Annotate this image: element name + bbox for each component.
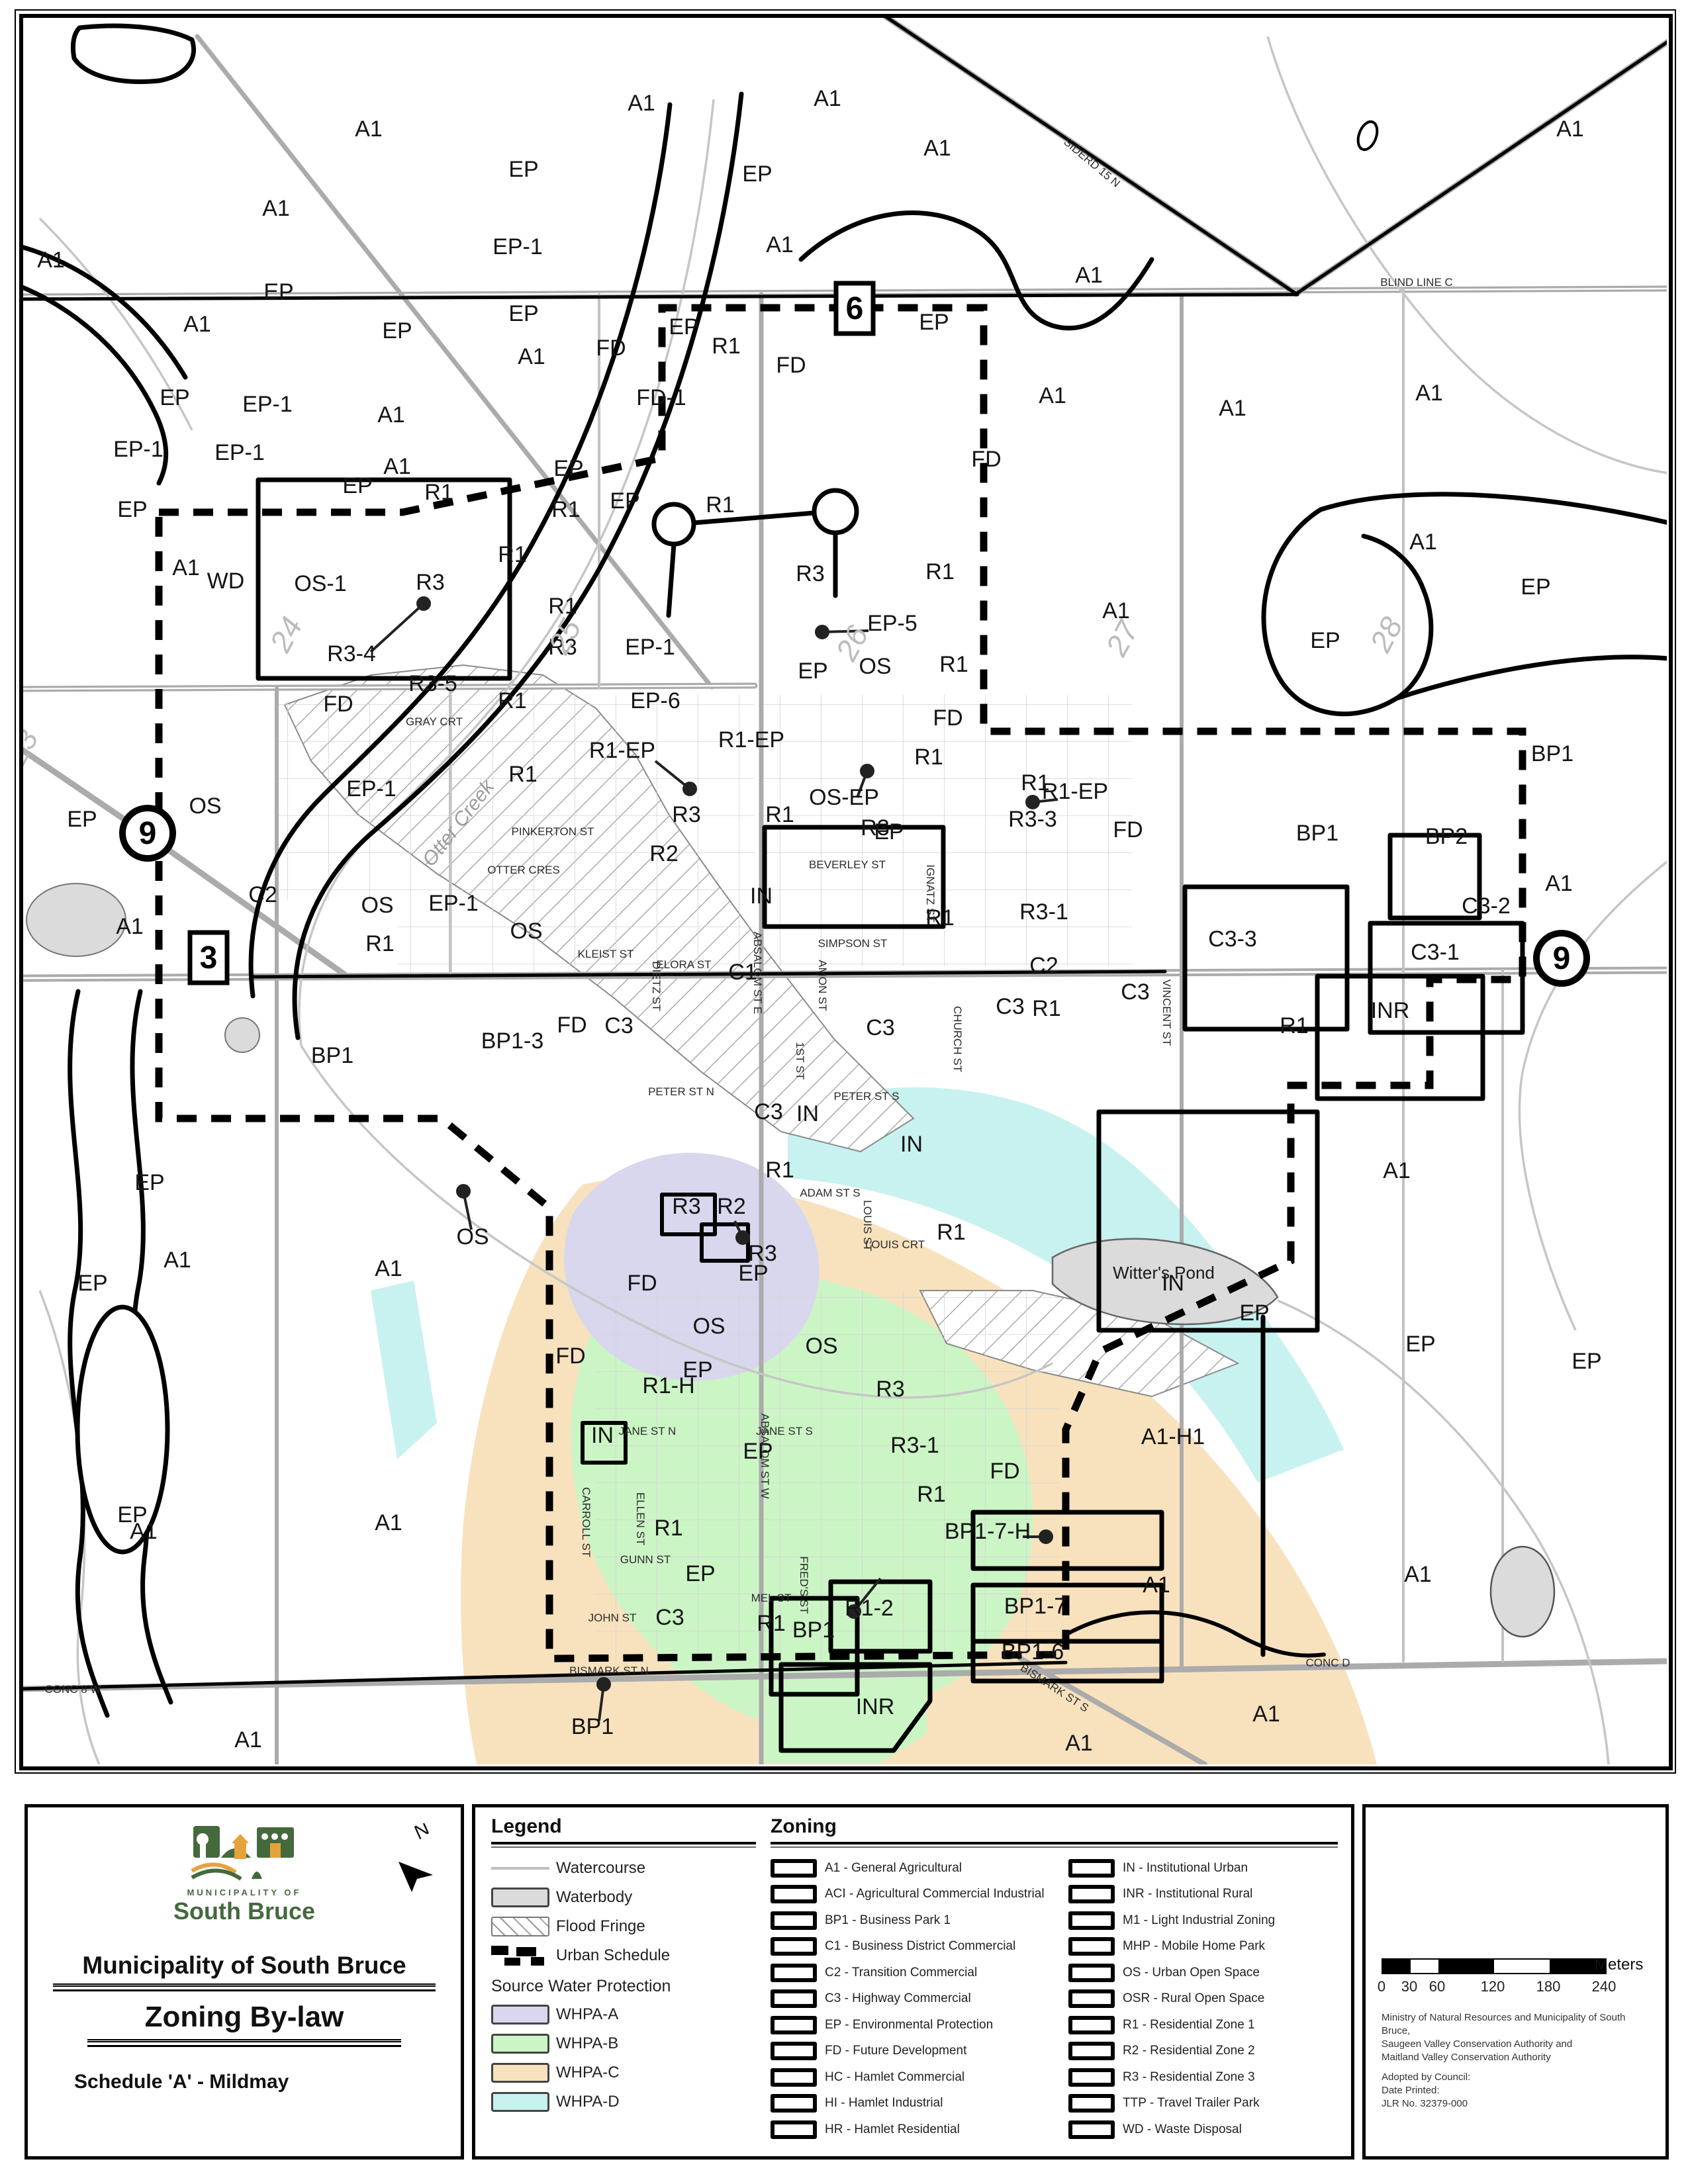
zoning-item-label: HI - Hamlet Industrial	[825, 2096, 943, 2111]
zoning-item: EP - Environmental Protection	[771, 2012, 1055, 2038]
zoning-item-label: R3 - Residential Zone 3	[1123, 2070, 1255, 2085]
north-arrow: N	[392, 1823, 438, 1896]
zoning-item-label: IN - Institutional Urban	[1123, 1861, 1248, 1876]
zoning-item-label: C3 - Highway Commercial	[825, 1991, 971, 2006]
zoning-swatch	[771, 2068, 817, 2087]
credits-line5: Date Printed:	[1382, 2084, 1655, 2097]
zoning-swatch	[1068, 2120, 1115, 2139]
zoning-item-label: MHP - Mobile Home Park	[1123, 1939, 1265, 1954]
zoning-swatch	[1068, 1911, 1115, 1930]
scale-tick: 180	[1536, 1978, 1561, 1995]
zoning-swatch	[1068, 1989, 1115, 2008]
scale-tick: 60	[1429, 1978, 1445, 1995]
zoning-title: Zoning	[771, 1815, 837, 1838]
zoning-item: A1 - General Agricultural	[771, 1855, 1055, 1882]
zoning-item-label: TTP - Travel Trailer Park	[1123, 2096, 1260, 2111]
legend-panel: Legend WatercourseWaterbodyFlood FringeU…	[472, 1804, 1354, 2160]
page-outer-frame	[15, 9, 1676, 1774]
scale-unit: Meters	[1595, 1956, 1643, 1974]
zoning-item-label: R1 - Residential Zone 1	[1123, 2018, 1255, 2032]
legend-item-label: WHPA-A	[556, 2005, 618, 2024]
zoning-item: C1 - Business District Commercial	[771, 1934, 1055, 1960]
scale-segment	[1383, 1960, 1411, 1973]
zoning-item-label: INR - Institutional Rural	[1123, 1887, 1252, 1901]
zoning-item-label: A1 - General Agricultural	[825, 1861, 962, 1876]
zoning-item-label: C2 - Transition Commercial	[825, 1966, 977, 1980]
zoning-item-label: OSR - Rural Open Space	[1123, 1991, 1264, 2006]
legend-item-label: Flood Fringe	[556, 1917, 645, 1936]
zoning-swatch	[1068, 2068, 1115, 2087]
zoning-column-2: IN - Institutional UrbanINR - Institutio…	[1068, 1855, 1353, 2143]
zoning-item: INR - Institutional Rural	[1068, 1882, 1353, 1908]
title-rule1	[53, 1983, 436, 1991]
credits-line3: Maitland Valley Conservation Authority	[1382, 2051, 1655, 2064]
zoning-column-1: A1 - General AgriculturalACI - Agricultu…	[771, 1855, 1055, 2143]
whpa-a-swatch	[491, 2005, 549, 2025]
zoning-item: IN - Institutional Urban	[1068, 1855, 1353, 1882]
legend-item-label: WHPA-D	[556, 2093, 620, 2111]
north-letter: N	[410, 1823, 434, 1844]
legend-item: Urban Schedule	[491, 1941, 743, 1970]
zoning-swatch	[1068, 2016, 1115, 2034]
waterbody-swatch	[491, 1888, 549, 1907]
scale-segment	[1494, 1960, 1550, 1973]
zoning-item: C2 - Transition Commercial	[771, 1960, 1055, 1986]
legend-item: WHPA-D	[491, 2087, 743, 2116]
zoning-swatch	[771, 1989, 817, 2008]
legend-item-label: WHPA-B	[556, 2034, 618, 2053]
zoning-item-label: C1 - Business District Commercial	[825, 1939, 1015, 1954]
zoning-item-label: FD - Future Development	[825, 2044, 966, 2058]
scale-segment	[1411, 1960, 1438, 1973]
whpa-c-swatch	[491, 2063, 549, 2083]
legend-item-label: Urban Schedule	[556, 1946, 670, 1965]
watercourse-swatch	[491, 1867, 549, 1870]
floodfringe-swatch	[491, 1917, 549, 1936]
credits-admin: Adopted by Council: Date Printed: JLR No…	[1382, 2071, 1655, 2111]
zoning-swatch	[771, 2042, 817, 2060]
zoning-item: BP1 - Business Park 1	[771, 1907, 1055, 1934]
zoning-swatch	[1068, 2042, 1115, 2060]
legend-item: Watercourse	[491, 1854, 743, 1883]
scale-bar-ticks: 03060120180240	[1382, 1974, 1604, 1993]
zoning-item: R3 - Residential Zone 3	[1068, 2064, 1353, 2091]
zoning-item: FD - Future Development	[771, 2038, 1055, 2065]
zoning-swatch	[771, 2016, 817, 2034]
logo-graphic	[188, 1819, 301, 1883]
zoning-swatch	[1068, 2094, 1115, 2113]
legend-title: Legend	[491, 1815, 562, 1838]
municipality-logo: MUNICIPALITY OF South Bruce	[173, 1819, 315, 1925]
zoning-item-label: M1 - Light Industrial Zoning	[1123, 1913, 1275, 1928]
scale-tick: 30	[1401, 1978, 1417, 1995]
zoning-item: ACI - Agricultural Commercial Industrial	[771, 1882, 1055, 1908]
zoning-swatch	[771, 1911, 817, 1930]
zoning-swatch	[771, 2120, 817, 2139]
whpa-d-swatch	[491, 2092, 549, 2112]
zoning-item-label: EP - Environmental Protection	[825, 2018, 993, 2032]
zoning-item: HC - Hamlet Commercial	[771, 2064, 1055, 2091]
zoning-item: R2 - Residential Zone 2	[1068, 2038, 1353, 2065]
zoning-item-label: HR - Hamlet Residential	[825, 2122, 960, 2137]
credits-line6: JLR No. 32379-000	[1382, 2097, 1655, 2111]
zoning-swatch	[771, 1937, 817, 1956]
scale-tick: 0	[1378, 1978, 1385, 1995]
legend-items: WatercourseWaterbodyFlood FringeUrban Sc…	[491, 1854, 743, 2116]
legend-item: Flood Fringe	[491, 1912, 743, 1941]
zoning-item: OSR - Rural Open Space	[1068, 1986, 1353, 2013]
title-block: MUNICIPALITY OF South Bruce N Municipali…	[24, 1804, 464, 2160]
zoning-item-label: OS - Urban Open Space	[1123, 1966, 1260, 1980]
zoning-item: HR - Hamlet Residential	[771, 2116, 1055, 2143]
legend-item: Waterbody	[491, 1883, 743, 1912]
zoning-swatch	[771, 1885, 817, 1903]
legend-item-label: Watercourse	[556, 1859, 645, 1878]
title-rule2	[87, 2039, 401, 2047]
source-water-protection-title: Source Water Protection	[491, 1977, 743, 1996]
zoning-item: OS - Urban Open Space	[1068, 1960, 1353, 1986]
logo-subtitle: MUNICIPALITY OF	[173, 1888, 315, 1897]
zoning-item: TTP - Travel Trailer Park	[1068, 2091, 1353, 2117]
scale-bar-blocks	[1382, 1958, 1607, 1974]
zoning-rule	[771, 1842, 1338, 1848]
legend-item: WHPA-B	[491, 2029, 743, 2058]
zoning-swatch	[1068, 1859, 1115, 1878]
zoning-swatch	[771, 1859, 817, 1878]
zoning-item-label: R2 - Residential Zone 2	[1123, 2044, 1255, 2058]
zoning-item-label: HC - Hamlet Commercial	[825, 2070, 964, 2085]
zoning-item: WD - Waste Disposal	[1068, 2116, 1353, 2143]
zoning-item: HI - Hamlet Industrial	[771, 2091, 1055, 2117]
urban-swatch	[491, 1946, 549, 1966]
logo-name: South Bruce	[173, 1897, 315, 1925]
whpa-b-swatch	[491, 2034, 549, 2054]
zoning-item: M1 - Light Industrial Zoning	[1068, 1907, 1353, 1934]
zoning-item: R1 - Residential Zone 1	[1068, 2012, 1353, 2038]
legend-item: WHPA-A	[491, 2000, 743, 2029]
zoning-item-label: ACI - Agricultural Commercial Industrial	[825, 1887, 1045, 1901]
credits-panel: 03060120180240 Meters Ministry of Natura…	[1362, 1804, 1669, 2160]
scale-tick: 240	[1592, 1978, 1617, 1995]
legend-item-label: WHPA-C	[556, 2064, 620, 2082]
credits-line1: Ministry of Natural Resources and Munici…	[1382, 2011, 1655, 2038]
legend-rule	[491, 1842, 756, 1848]
credits-line2: Saugeen Valley Conservation Authority an…	[1382, 2038, 1655, 2051]
zoning-swatch	[1068, 1885, 1115, 1903]
legend-item: WHPA-C	[491, 2058, 743, 2087]
credits-line4: Adopted by Council:	[1382, 2071, 1655, 2084]
title-line1: Municipality of South Bruce	[28, 1952, 461, 1979]
zoning-swatch	[1068, 1937, 1115, 1956]
zoning-item-label: WD - Waste Disposal	[1123, 2122, 1242, 2137]
zoning-swatch	[1068, 1964, 1115, 1982]
zoning-item-label: BP1 - Business Park 1	[825, 1913, 951, 1928]
scale-tick: 120	[1481, 1978, 1505, 1995]
zoning-item: MHP - Mobile Home Park	[1068, 1934, 1353, 1960]
title-line2: Zoning By-law	[28, 2001, 461, 2034]
title-schedule: Schedule 'A' - Mildmay	[74, 2071, 289, 2093]
zoning-item: C3 - Highway Commercial	[771, 1986, 1055, 2013]
zoning-swatch	[771, 2094, 817, 2113]
scale-segment	[1438, 1960, 1494, 1973]
credits-sources: Ministry of Natural Resources and Munici…	[1382, 2011, 1655, 2064]
legend-item-label: Waterbody	[556, 1888, 632, 1907]
zoning-swatch	[771, 1964, 817, 1982]
